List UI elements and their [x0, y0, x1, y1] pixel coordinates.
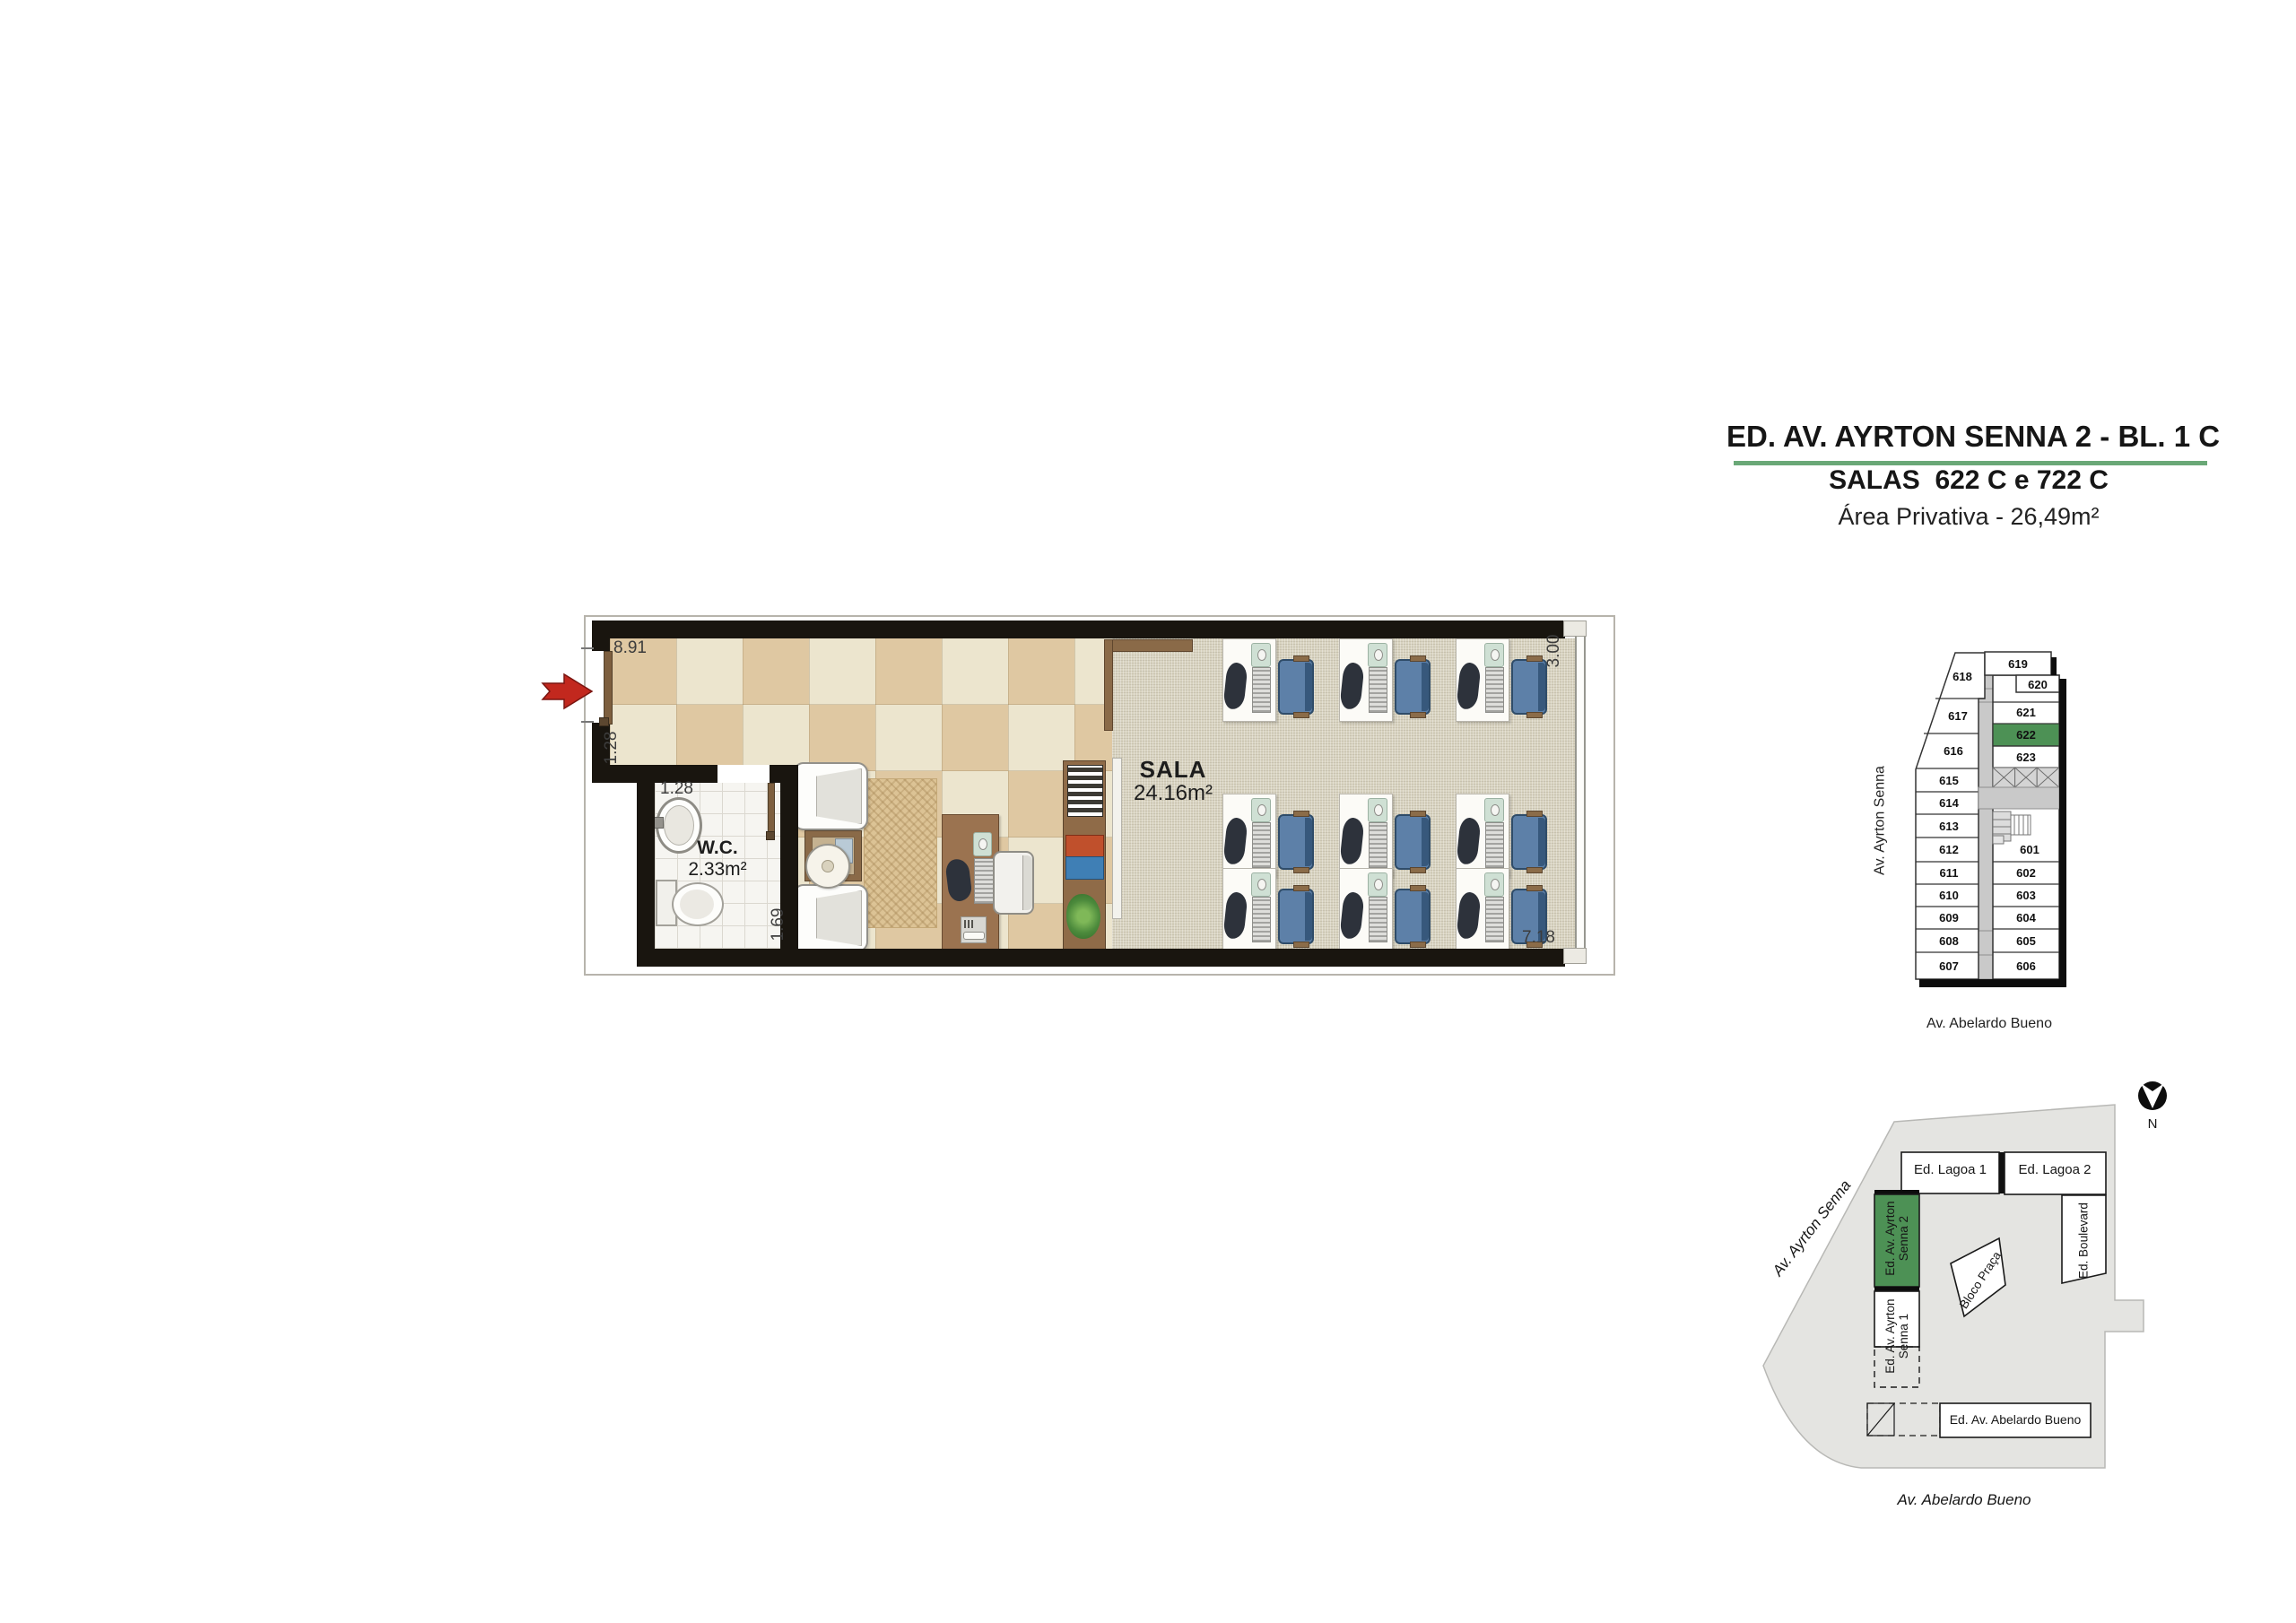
chair-armrest: [1410, 885, 1426, 891]
chair-back: [1538, 818, 1545, 866]
bookshelf-magazines-red: [1065, 835, 1104, 858]
wc-label: W.C.: [655, 838, 780, 859]
unit-number: 613: [1939, 820, 1959, 833]
label-lagoa2: Ed. Lagoa 2: [2004, 1163, 2106, 1178]
wall-wc-corner: [770, 765, 798, 783]
label-senna1: Ed. Av. Ayrton Senna 1: [1883, 1285, 1910, 1387]
keyboard: [1252, 667, 1271, 713]
title-area: Área Privativa - 26,49m²: [1726, 503, 2211, 531]
toilet-bowl-inner: [680, 890, 714, 919]
title-block: ED. AV. AYRTON SENNA 2 - BL. 1 C SALAS 6…: [1726, 420, 2211, 531]
chair-back: [1305, 663, 1312, 711]
page-title: ED. AV. AYRTON SENNA 2 - BL. 1 C: [1726, 420, 2211, 454]
key-plan-street-left: Av. Ayrton Senna: [1873, 760, 1891, 881]
round-table: [805, 844, 850, 889]
title-salas: SALAS 622 C e 722 C: [1726, 465, 2211, 496]
keyboard: [974, 858, 995, 904]
key-plan-drawing: 618 617 616 615 614 613 612 611 610 609 …: [1909, 651, 2070, 992]
unit-number: 602: [2016, 866, 2036, 880]
office-chair: [1278, 814, 1314, 870]
wall-bottom: [637, 949, 1565, 967]
phone-keypad: [964, 920, 975, 928]
unit-number: 603: [2016, 889, 2036, 902]
armchair-bottom: [793, 884, 868, 952]
unit-number: 616: [1944, 744, 1963, 758]
workstation: [1339, 638, 1429, 721]
site-street-bottom: Av. Abelardo Bueno: [1883, 1491, 2045, 1508]
label-boulevard: Ed. Boulevard: [2076, 1196, 2090, 1286]
credenza-side: [1104, 639, 1113, 731]
office-chair: [1278, 889, 1314, 944]
workstation: [1339, 868, 1429, 950]
unit-number: 619: [2008, 657, 2028, 671]
mouse: [1374, 649, 1383, 661]
chair-back: [1422, 892, 1429, 941]
unit-number: 621: [2016, 706, 2036, 719]
office-chair: [1278, 659, 1314, 715]
chair-armrest: [1526, 655, 1543, 662]
sala-label: SALA: [1115, 756, 1231, 784]
dim-entry-side: 1.28: [602, 721, 618, 775]
keyboard: [1485, 897, 1504, 942]
workstation: [1222, 794, 1312, 876]
mouse: [1257, 804, 1266, 816]
unit-number: 612: [1939, 843, 1959, 856]
site-plan-drawing: [1749, 1067, 2251, 1524]
chair-armrest: [1410, 712, 1426, 718]
north-icon: [2138, 1081, 2167, 1110]
keyboard: [1369, 897, 1387, 942]
wall-left-stub: [592, 638, 610, 651]
dim-window-width: 3.00: [1544, 625, 1561, 677]
mouse: [1257, 879, 1266, 890]
chair-armrest: [1293, 885, 1309, 891]
unit-number: 608: [1939, 934, 1959, 948]
chair-armrest: [1526, 885, 1543, 891]
chair-armrest: [1410, 942, 1426, 948]
label-senna2: Ed. Av. Ayrton Senna 2: [1883, 1190, 1910, 1287]
unit-number: 623: [2016, 751, 2036, 764]
unit-number: 606: [2016, 959, 2036, 973]
entry-arrow-icon: [541, 671, 595, 712]
chair-armrest: [1410, 655, 1426, 662]
dim-tick: [581, 647, 594, 649]
bookshelf-magazines-blue: [1065, 856, 1104, 880]
wc-area: 2.33m²: [655, 859, 780, 881]
chair-armrest: [1293, 655, 1309, 662]
desk-chair: [993, 851, 1034, 915]
unit-number: 605: [2016, 934, 2036, 948]
tile-floor-entrance: [610, 638, 1112, 765]
workstation: [1456, 638, 1545, 721]
mouse: [1491, 804, 1500, 816]
dim-sala-depth: 7.18: [1522, 928, 1555, 948]
mouse: [1491, 879, 1500, 890]
wc-faucet: [654, 817, 664, 829]
chair-back: [1422, 663, 1429, 711]
mouse: [1374, 804, 1383, 816]
round-table-center: [822, 860, 834, 872]
wall-wc-left: [637, 783, 655, 949]
sala-area: 24.16m²: [1115, 781, 1231, 806]
phone-handset: [963, 932, 985, 940]
office-chair: [1395, 659, 1431, 715]
label-abelardo: Ed. Av. Abelardo Bueno: [1940, 1413, 2091, 1428]
desk-phone: [961, 916, 987, 943]
office-chair: [1511, 659, 1547, 715]
window: [1575, 635, 1586, 949]
office-chair: [1511, 814, 1547, 870]
north-label: N: [2143, 1117, 2162, 1133]
elevators: [1993, 768, 2059, 787]
dim-tick: [581, 721, 594, 723]
armchair-cushion: [816, 890, 862, 946]
armchair-top: [793, 762, 868, 830]
chair-armrest: [1526, 712, 1543, 718]
keyboard: [1369, 822, 1387, 868]
entry-door-leaf: [604, 651, 613, 725]
sisal-rug: [864, 778, 937, 928]
wall-top: [592, 621, 1565, 638]
workstation: [1222, 638, 1312, 721]
desk-chair-back: [1022, 855, 1032, 910]
mouse: [1374, 879, 1383, 890]
window-jamb-top: [1563, 621, 1587, 637]
chair-armrest: [1526, 811, 1543, 817]
unit-number: 617: [1948, 709, 1968, 723]
toilet-bowl: [672, 882, 724, 926]
credenza-top: [1106, 639, 1193, 652]
unit-number: 620: [2028, 678, 2048, 691]
unit-number: 601: [2020, 843, 2039, 856]
office-chair: [1395, 889, 1431, 944]
mouse: [1257, 649, 1266, 661]
unit-number: 610: [1939, 889, 1959, 902]
keyboard: [1485, 822, 1504, 868]
unit-number: 615: [1939, 774, 1959, 787]
keyboard: [1485, 667, 1504, 713]
window-jamb-bottom: [1563, 948, 1587, 964]
chair-armrest: [1293, 712, 1309, 718]
unit-number: 604: [2016, 911, 2036, 924]
dim-wc-depth: 1.69: [769, 899, 785, 950]
chair-armrest: [1410, 811, 1426, 817]
potted-plant: [1066, 894, 1100, 939]
keyboard: [1252, 897, 1271, 942]
unit-number: 609: [1939, 911, 1959, 924]
office-chair: [1395, 814, 1431, 870]
title-underline: [1734, 461, 2207, 465]
unit-number-highlighted: 622: [2016, 728, 2036, 742]
chair-back: [1422, 818, 1429, 866]
chair-armrest: [1293, 942, 1309, 948]
chair-armrest: [1293, 811, 1309, 817]
plan-sheet: ED. AV. AYRTON SENNA 2 - BL. 1 C SALAS 6…: [0, 0, 2296, 1623]
keyboard: [1369, 667, 1387, 713]
chair-back: [1305, 818, 1312, 866]
mouse: [978, 838, 987, 850]
armchair-cushion: [816, 768, 862, 824]
label-lagoa1: Ed. Lagoa 1: [1901, 1163, 1999, 1178]
dim-top-width: 8.91: [613, 638, 647, 658]
dim-wc-width: 1.28: [660, 779, 693, 799]
workstation: [1339, 794, 1429, 876]
unit-number: 618: [1952, 670, 1972, 683]
bookshelf-binders: [1067, 765, 1103, 817]
mouse: [1491, 649, 1500, 661]
keyboard: [1252, 822, 1271, 868]
unit-number: 607: [1939, 959, 1959, 973]
chair-back: [1305, 892, 1312, 941]
unit-number: 614: [1939, 796, 1959, 810]
workstation: [1456, 794, 1545, 876]
workstation: [1222, 868, 1312, 950]
key-plan-street-bottom: Av. Abelardo Bueno: [1909, 1016, 2070, 1032]
unit-number: 611: [1940, 866, 1959, 880]
wc-door-leaf: [768, 783, 775, 835]
